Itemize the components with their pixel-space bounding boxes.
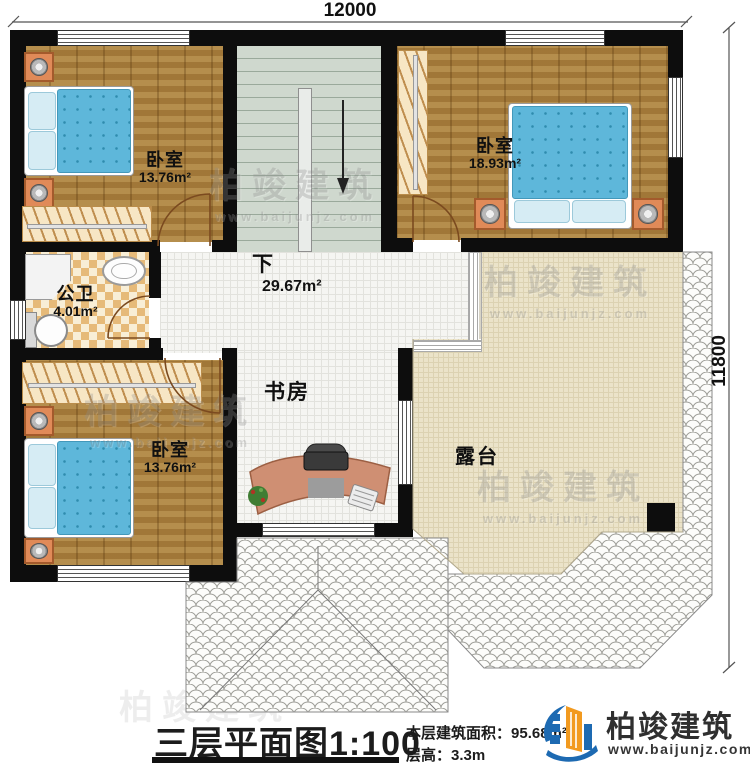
nightstand (24, 406, 54, 436)
window (57, 30, 190, 46)
wardrobe (22, 362, 202, 404)
wall-segment (396, 238, 413, 252)
nightstand (474, 198, 506, 230)
pillow (28, 92, 56, 130)
nightstand (24, 538, 54, 564)
brand-name: 柏竣建筑 (606, 702, 734, 746)
wall-segment (212, 240, 237, 252)
brand-website: www.baijunjz.com (608, 741, 750, 757)
floor-height-spec: 层高：3.3m (406, 744, 485, 765)
dimension-width-label: 12000 (290, 0, 410, 22)
bathroom-label: 公卫 4.01m² (28, 284, 123, 320)
pillow (28, 487, 56, 529)
nightstand (632, 198, 664, 230)
wall-segment (375, 523, 413, 537)
wardrobe (22, 206, 152, 242)
sink (102, 256, 146, 286)
terrace-column (647, 503, 675, 533)
window (262, 523, 375, 537)
pillow (28, 444, 56, 486)
bedroom-bottom-left-label: 卧室 13.76m² (105, 440, 235, 476)
window (668, 77, 683, 158)
wall-segment (381, 30, 397, 252)
wall-segment (398, 348, 413, 400)
window (10, 300, 26, 340)
study-floor (237, 352, 398, 524)
terrace-edge-trim-vertical (468, 252, 482, 352)
title-underline (152, 757, 399, 763)
stair-direction-label: 下 (252, 248, 273, 278)
wall-segment (398, 485, 413, 523)
pillow (28, 131, 56, 170)
terrace-label: 露台 (455, 440, 499, 469)
study-label: 书房 (264, 376, 310, 406)
bedroom-top-left-label: 卧室 13.76m² (100, 150, 230, 186)
pillow (572, 200, 626, 223)
window (505, 30, 605, 46)
dimension-height-label: 11800 (709, 306, 731, 416)
terrace-edge-trim-horizontal (413, 340, 482, 352)
hall-floor (160, 252, 468, 353)
wall-segment (223, 30, 237, 242)
nightstand (24, 52, 54, 82)
wall-segment (461, 238, 683, 252)
floor-area-spec: 本层建筑面积：95.68m² (406, 722, 567, 743)
pillow (514, 200, 570, 223)
hall-area-label: 29.67m² (262, 278, 322, 296)
nightstand (24, 178, 54, 208)
stair-rail (298, 88, 312, 252)
floor-plan: 12000 11800 (0, 0, 750, 769)
bedroom-top-right-label: 卧室 18.93m² (430, 136, 560, 172)
wardrobe (398, 50, 428, 195)
wall-segment (10, 348, 163, 360)
window (57, 565, 190, 582)
wall-segment (149, 252, 161, 298)
wall-segment (230, 523, 262, 537)
sliding-door (398, 400, 413, 485)
